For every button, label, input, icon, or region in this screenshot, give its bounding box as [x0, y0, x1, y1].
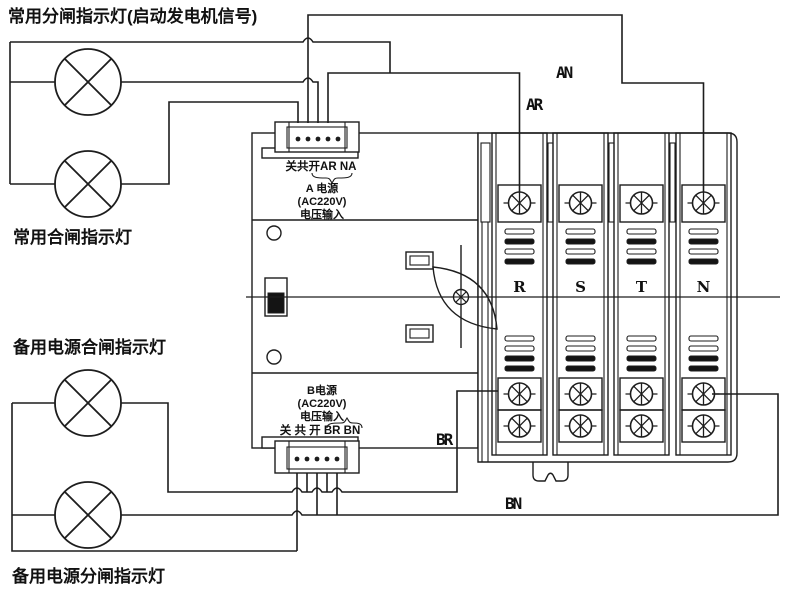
terminal-block-b [262, 437, 359, 473]
wire-lamp1-right [121, 78, 318, 123]
lamp2-label: 常用合闸指示灯 [13, 227, 132, 247]
lamp3-label: 备用电源合闸指示灯 [12, 337, 166, 357]
block-a-source: A 电源 [306, 181, 339, 195]
lamp1-label: 常用分闸指示灯(启动发电机信号) [8, 6, 257, 26]
block-b-voltage: (AC220V) [298, 398, 347, 410]
lamp-normal-closed-icon [55, 151, 121, 217]
pole-label-n: N [697, 278, 711, 296]
pole-label-t: T [636, 278, 648, 296]
wire-label-br: BR [436, 430, 454, 449]
wire-label-bn: BN [505, 494, 522, 513]
block-a-input: 电压输入 [300, 207, 344, 221]
wire-label-an: AN [556, 63, 573, 82]
lamp-normal-open-icon [55, 49, 121, 115]
indicator-lamps [55, 49, 121, 548]
wire-label-ar: AR [526, 95, 544, 114]
block-b-terminal-row: 关 共 开 BR BN [280, 423, 361, 437]
block-a-voltage: (AC220V) [298, 196, 347, 208]
block-b-input: 电压输入 [300, 409, 344, 423]
lamp-backup-closed-icon [55, 370, 121, 436]
wiring-diagram-page: R S T N [0, 0, 790, 602]
wiring-diagram: R S T N [0, 0, 790, 602]
din-rail-clip [533, 462, 568, 481]
terminal-block-a [262, 122, 359, 158]
block-b-source: B电源 [307, 383, 337, 397]
pole-label-s: S [575, 278, 586, 296]
controller-section [252, 133, 478, 448]
block-a-terminal-row: 关共开AR NA [286, 159, 357, 173]
lamp4-label: 备用电源分闸指示灯 [11, 566, 165, 586]
pole-label-r: R [513, 278, 526, 296]
lamp-backup-open-icon [55, 482, 121, 548]
